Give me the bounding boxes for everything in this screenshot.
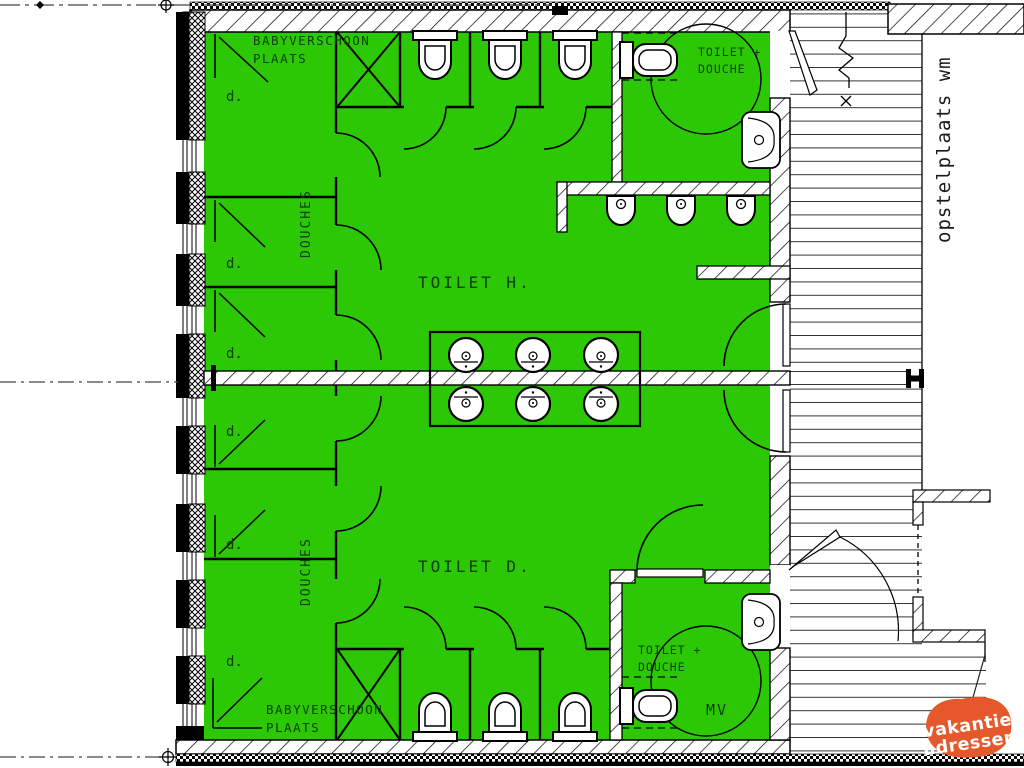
douches-label-top: DOUCHES <box>299 189 314 258</box>
top-cavity-band <box>190 2 890 10</box>
babyverschoon-bottom-2: PLAATS <box>266 720 320 735</box>
room-label: TOILET + <box>698 45 761 59</box>
shower-label: d. <box>226 537 243 553</box>
shower-label: d. <box>226 89 243 105</box>
toilet-d-label: TOILET D. <box>418 557 532 576</box>
centre-wall <box>204 371 790 385</box>
shower-label: d. <box>226 256 243 272</box>
top-right-wall <box>888 4 1024 34</box>
room-label: DOUCHE <box>698 62 746 76</box>
babyverschoon-top-1: BABYVERSCHOON <box>253 33 370 48</box>
datum-diamond <box>36 1 44 9</box>
room-label: TOILET + <box>638 643 701 657</box>
babyverschoon-bottom-1: BABYVERSCHOON <box>266 702 383 717</box>
datum-marker <box>158 0 174 13</box>
shower-label: d. <box>226 346 243 362</box>
bottom-cavity-band <box>176 754 1024 762</box>
door-leaf <box>783 390 790 452</box>
mv-label: MV <box>706 701 728 719</box>
floor-plan-screenshot: opstelplaats wm <box>0 0 1024 768</box>
toilet-h-label: TOILET H. <box>418 273 532 292</box>
bottom-edge-line <box>176 762 1024 766</box>
top-wall <box>190 10 790 32</box>
bottom-wall <box>176 740 790 754</box>
opstelplaats-label: opstelplaats wm <box>933 56 955 243</box>
door-leaf <box>783 304 790 366</box>
datum-marker <box>159 748 177 766</box>
left-wall <box>176 12 205 756</box>
douches-label-bottom: DOUCHES <box>299 537 314 606</box>
floor-plan-canvas: opstelplaats wm <box>0 0 1024 768</box>
door-leaf <box>637 569 703 577</box>
shower-label: d. <box>226 654 243 670</box>
stub-wall <box>697 266 790 279</box>
room-label: DOUCHE <box>638 660 686 674</box>
babyverschoon-top-2: PLAATS <box>253 51 307 66</box>
shower-label: d. <box>226 424 243 440</box>
urinal-wall <box>557 182 770 195</box>
deck-opstelplaats: opstelplaats wm <box>790 12 1024 754</box>
centre-wall-tick <box>211 365 216 391</box>
